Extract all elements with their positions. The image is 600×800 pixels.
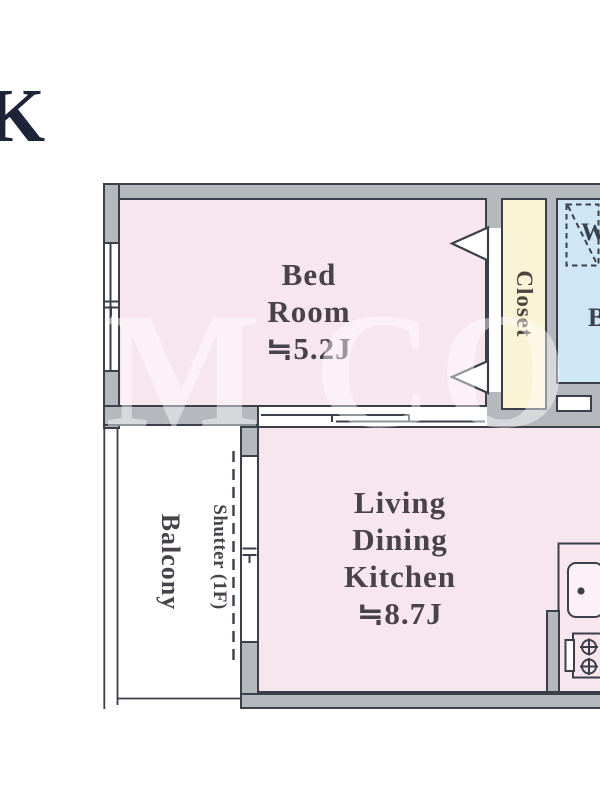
ldk-balcony-window <box>240 457 259 641</box>
kitchen-sink <box>567 562 600 618</box>
bedroom-size: ≒5.2J <box>209 330 409 367</box>
bedroom-label: Bed Room ≒5.2J <box>209 256 409 367</box>
ldk-label-line1: Living <box>300 484 500 521</box>
bedroom-label-line2: Room <box>209 293 409 330</box>
ldk-label-line2: Dining <box>300 521 500 558</box>
ldk-size: ≒8.7J <box>300 595 500 632</box>
bedroom-window <box>103 242 118 372</box>
balcony-label: Balcony <box>155 482 185 642</box>
wall-kitchen-partition <box>546 610 560 693</box>
ldk-label-line3: Kitchen <box>300 558 500 595</box>
washer-symbol-label: W <box>581 219 600 247</box>
wall-bottom <box>240 693 600 709</box>
cutoff-room-label: B <box>588 303 600 333</box>
shutter-label: Shutter (1F) <box>208 477 230 637</box>
closet-door-track <box>487 228 503 392</box>
ldk-label: Living Dining Kitchen ≒8.7J <box>300 484 500 632</box>
floorplan-page: K <box>0 0 600 800</box>
washroom-door <box>556 395 592 412</box>
plan-type-letter: K <box>0 78 45 154</box>
wall-bedroom-bottom-left <box>103 405 259 426</box>
sliding-door-band <box>259 407 485 426</box>
bedroom-label-line1: Bed <box>209 256 409 293</box>
closet-label: Closet <box>511 244 537 364</box>
